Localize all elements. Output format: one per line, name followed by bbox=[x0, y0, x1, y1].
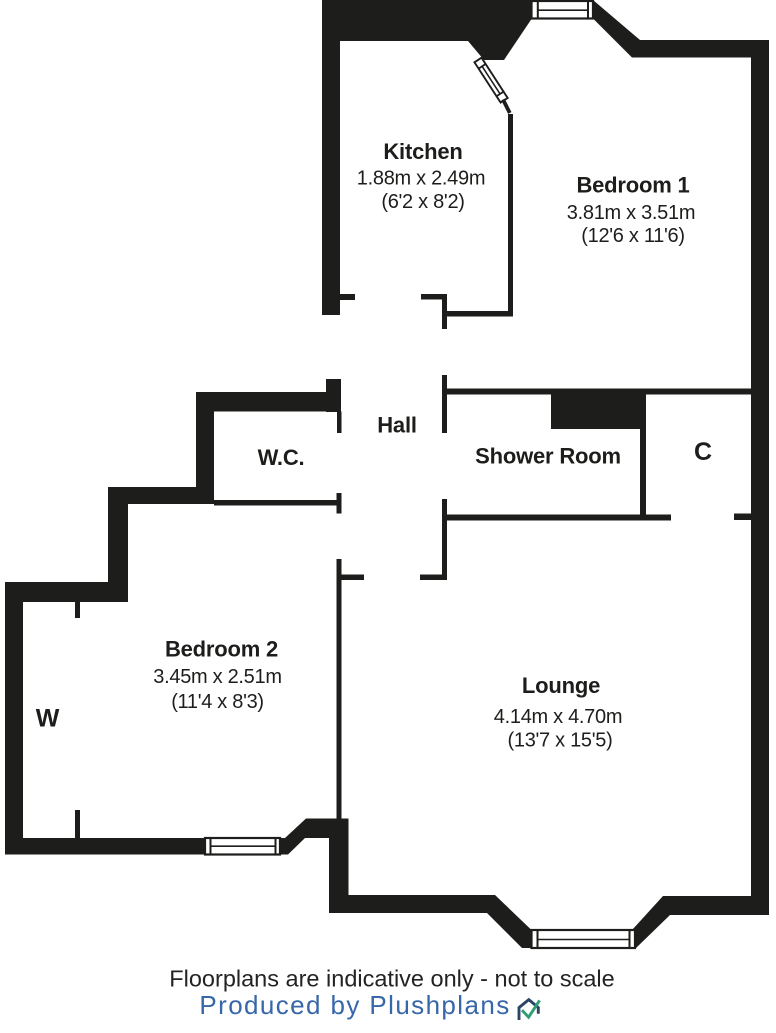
svg-text:Shower Room: Shower Room bbox=[475, 444, 621, 469]
svg-text:(6'2 x 8'2): (6'2 x 8'2) bbox=[381, 191, 464, 213]
svg-text:(11'4 x 8'3): (11'4 x 8'3) bbox=[171, 691, 264, 713]
svg-text:(13'7 x 15'5): (13'7 x 15'5) bbox=[508, 730, 613, 752]
svg-text:Floorplans are indicative only: Floorplans are indicative only - not to … bbox=[169, 966, 614, 992]
svg-text:1.88m x 2.49m: 1.88m x 2.49m bbox=[357, 168, 485, 190]
svg-text:Bedroom 1: Bedroom 1 bbox=[576, 173, 689, 198]
svg-text:Bedroom 2: Bedroom 2 bbox=[165, 637, 278, 662]
svg-text:(12'6 x 11'6): (12'6 x 11'6) bbox=[581, 225, 684, 247]
svg-text:4.14m x 4.70m: 4.14m x 4.70m bbox=[494, 706, 622, 728]
svg-text:3.81m x 3.51m: 3.81m x 3.51m bbox=[567, 202, 695, 224]
svg-text:Lounge: Lounge bbox=[522, 673, 600, 698]
svg-text:C: C bbox=[694, 438, 712, 466]
svg-text:W.C.: W.C. bbox=[258, 445, 305, 470]
svg-text:Produced by Plushplans: Produced by Plushplans bbox=[199, 990, 510, 1020]
svg-text:3.45m x 2.51m: 3.45m x 2.51m bbox=[153, 666, 281, 688]
svg-text:Kitchen: Kitchen bbox=[383, 139, 462, 164]
svg-text:Hall: Hall bbox=[377, 413, 417, 438]
svg-text:W: W bbox=[36, 705, 60, 733]
